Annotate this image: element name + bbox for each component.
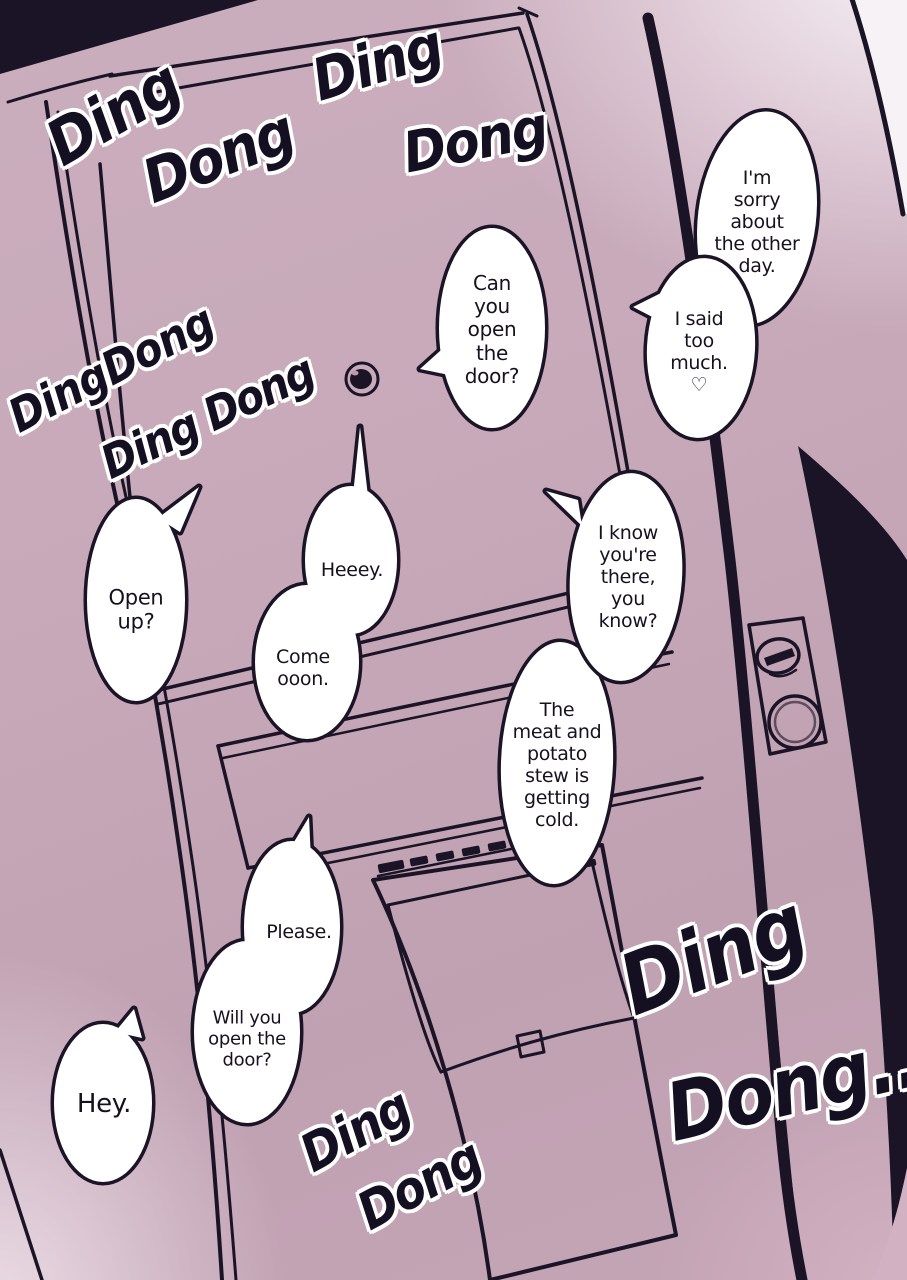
top-right-corner	[851, 0, 907, 214]
bubble-text-will-you-open: Will you open the door?	[208, 1009, 286, 1072]
bubble-text-can-you-open: Can you open the door?	[465, 272, 520, 388]
door-knob[interactable]	[769, 696, 821, 748]
speech-bubbles	[54, 105, 829, 1182]
bubble-text-stew: The meat and potato stew is getting cold…	[513, 699, 602, 831]
bubble-text-sorry: I'm sorry about the other day.	[714, 167, 799, 277]
lock-plate	[749, 618, 826, 754]
speech-bubble-please-will-you	[194, 817, 340, 1123]
bubble-text-i-know: I know you're there, you know?	[598, 522, 658, 632]
bubble-text-heeey: Heeey.	[321, 559, 383, 581]
bubble-text-please: Please.	[266, 921, 332, 943]
bubble-text-come-ooon: Come ooon.	[276, 646, 330, 690]
bubble-text-said-too-much: I said too much. ♡	[670, 308, 728, 396]
bubble-text-open-up: Open up?	[109, 586, 164, 635]
bubble-text-hey: Hey.	[77, 1089, 131, 1119]
peephole	[346, 363, 378, 395]
speech-bubble-heeey-come-ooon	[255, 427, 397, 739]
comic-page: I'm sorry about the other day. I said to…	[0, 0, 907, 1280]
thumbturn-lock	[754, 636, 801, 677]
